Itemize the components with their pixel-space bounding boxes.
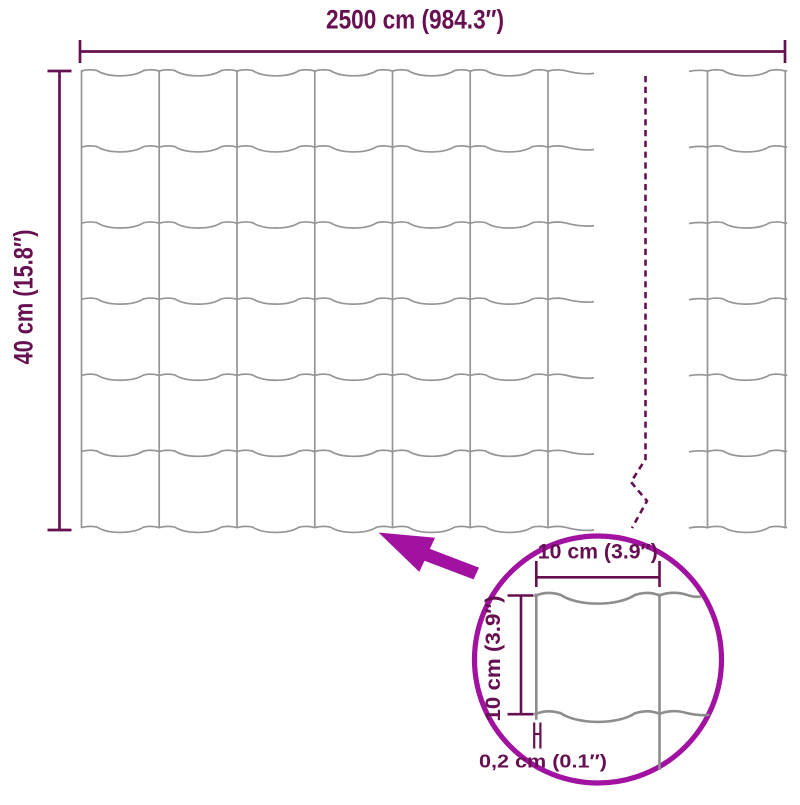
svg-text:0,2 cm (0.1″): 0,2 cm (0.1″) bbox=[479, 751, 607, 772]
svg-text:2500 cm (984.3″): 2500 cm (984.3″) bbox=[326, 5, 504, 35]
svg-text:10 cm (3.9″): 10 cm (3.9″) bbox=[482, 596, 505, 722]
svg-text:40 cm (15.8″): 40 cm (15.8″) bbox=[9, 230, 39, 365]
svg-text:10 cm (3.9″): 10 cm (3.9″) bbox=[538, 541, 658, 564]
